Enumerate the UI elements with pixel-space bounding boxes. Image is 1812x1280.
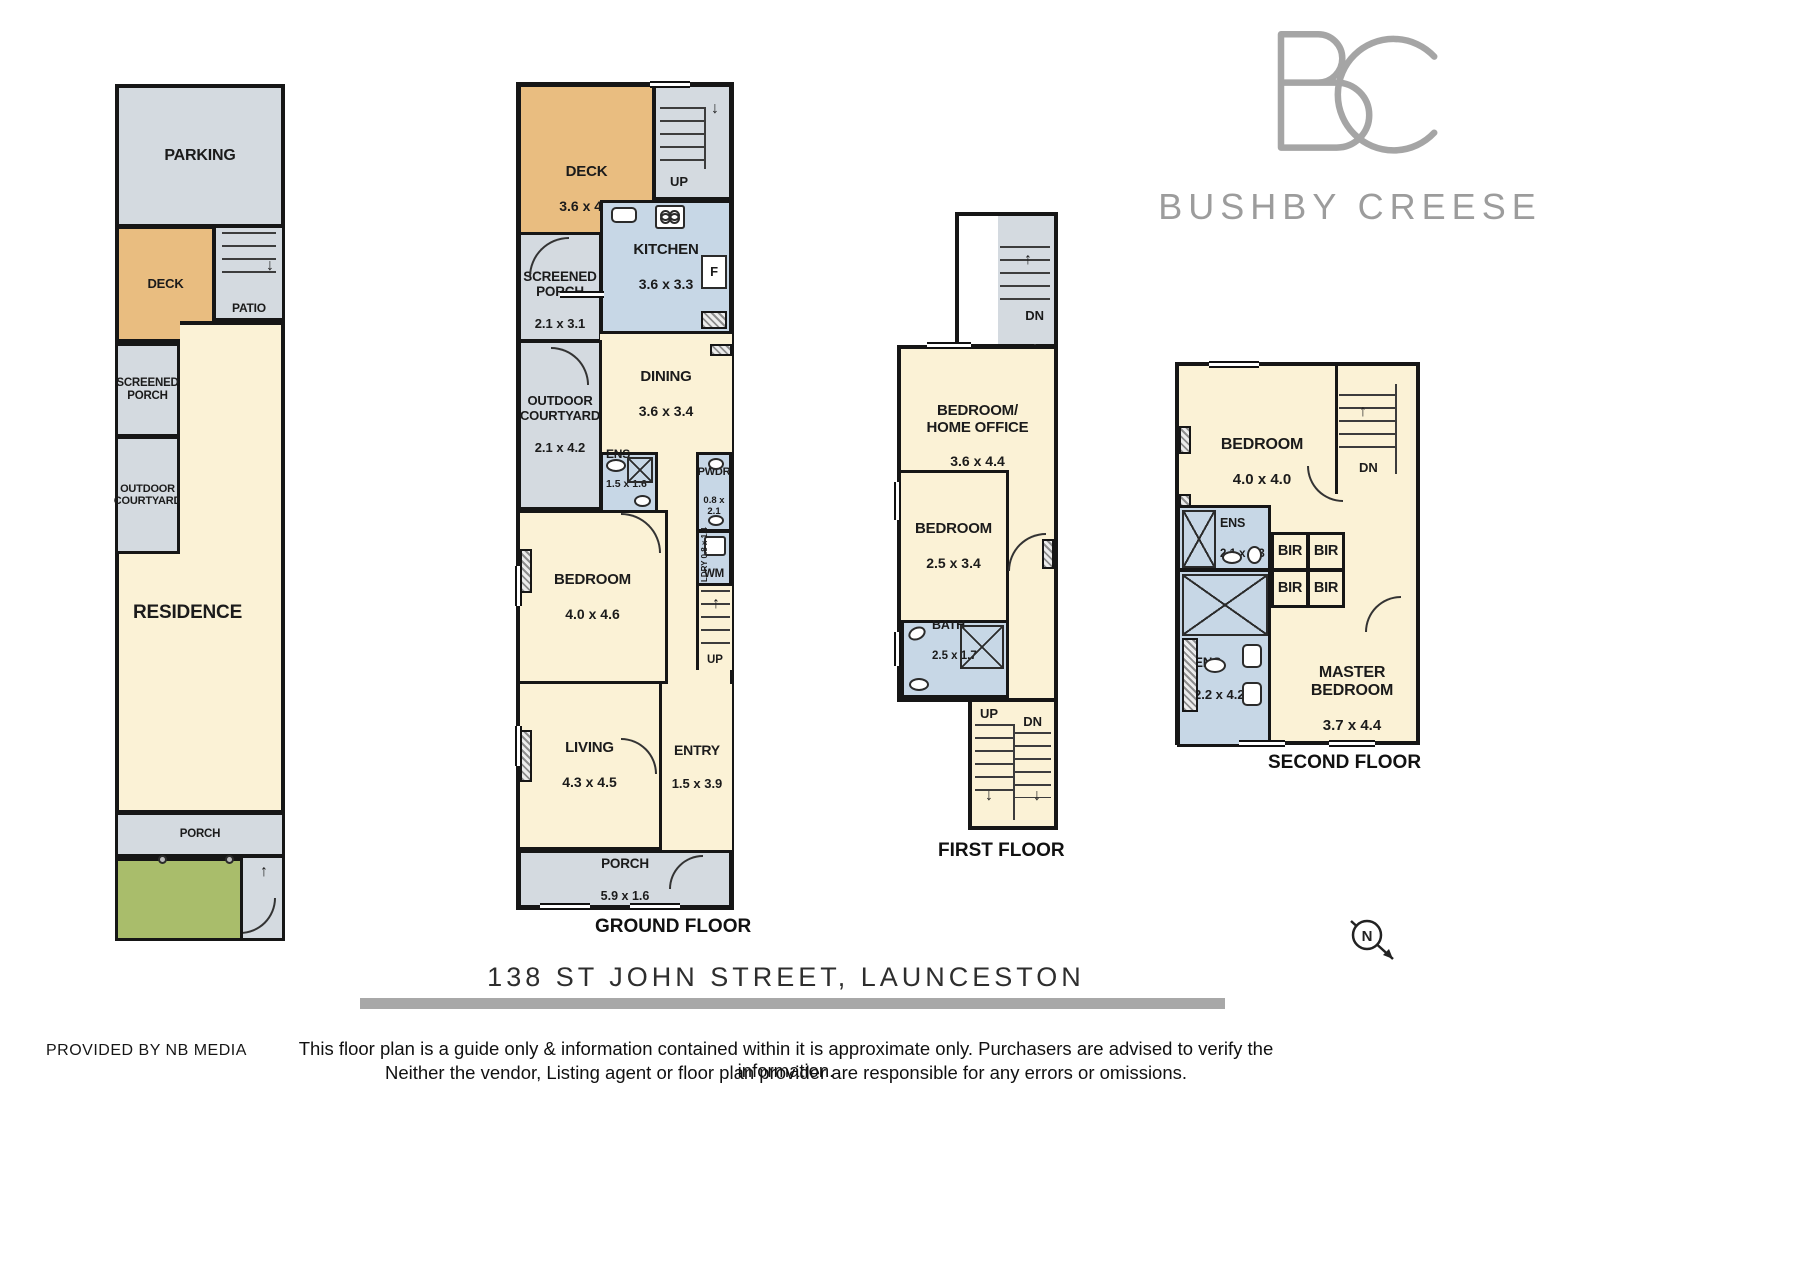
room-name: OUTDOOR COURTYARD	[114, 483, 181, 508]
bir-label: BIR	[1278, 543, 1302, 559]
room-name: RESIDENCE	[133, 602, 273, 623]
ground-courtyard: OUTDOOR COURTYARD 2.1 x 4.2	[518, 340, 602, 510]
toilet-icon	[1247, 546, 1262, 564]
bc-monogram-icon	[1255, 25, 1450, 155]
room-label: DINING 3.6 x 3.4	[639, 351, 694, 437]
ground-porch: PORCH 5.9 x 1.6	[518, 850, 732, 908]
room-name: BEDROOM	[915, 521, 992, 538]
window	[894, 632, 901, 666]
arrow-down-icon: ↓	[266, 258, 274, 274]
stairs-icon	[975, 724, 1013, 798]
arrow-up-icon: ↑	[712, 596, 720, 612]
door-arc-icon	[621, 738, 657, 774]
room-name: ENS	[1220, 516, 1265, 530]
room-dims: 3.6 x 4.4	[927, 454, 1029, 470]
room-name: DECK	[559, 164, 614, 181]
post-icon	[225, 855, 234, 864]
wall-hatch	[710, 344, 732, 356]
ground-kitchen: KITCHEN 3.6 x 3.3 F	[600, 200, 732, 334]
room-name: PORCH	[180, 828, 221, 841]
shower-icon	[960, 625, 1004, 669]
room-label: BEDROOM 4.0 x 4.6	[554, 554, 631, 640]
room-dims: 2.1 x 4.2	[520, 441, 600, 456]
room-dims: 4.0 x 4.6	[554, 607, 631, 623]
burner-icon	[669, 213, 680, 224]
toilet-icon	[1204, 658, 1226, 673]
window	[515, 566, 522, 606]
bir-label: BIR	[1278, 580, 1302, 596]
stair-rail	[1013, 724, 1015, 820]
door-arc-icon	[621, 513, 661, 553]
room-name: DINING	[639, 369, 694, 386]
shower-icon	[627, 457, 653, 483]
room-dims: 4.3 x 4.5	[562, 775, 617, 791]
wall-hatch	[1182, 638, 1198, 712]
north-arrow: N	[1345, 915, 1401, 967]
bir-label: BIR	[1314, 543, 1338, 559]
site-residence-upper	[180, 321, 285, 814]
room-label: ENS 2.1 x 1.3	[1220, 498, 1265, 579]
ground-stairs-mid: ↑ UP	[696, 586, 732, 670]
bir-robe: BIR	[1307, 532, 1345, 571]
stairs-up-label: UP	[670, 174, 688, 189]
window	[1329, 740, 1375, 747]
stairs-dn-label: DN	[1359, 460, 1378, 475]
room-dims: 3.7 x 4.4	[1287, 718, 1417, 735]
first-bath: BATH 2.5 x 1.7	[901, 620, 1009, 698]
stair-rail	[1395, 384, 1397, 474]
north-label: N	[1362, 928, 1373, 945]
site-parking: PARKING	[115, 84, 285, 228]
ground-living: LIVING 4.3 x 4.5	[520, 684, 662, 850]
brand-name: BUSHBY CREESE	[1140, 186, 1560, 228]
room-name: PORCH	[601, 856, 650, 871]
room-name: BEDROOM/ HOME OFFICE	[927, 403, 1029, 437]
site-plan: PARKING DECK ↓ PATIO SCREENED PORCH OUTD…	[115, 84, 285, 941]
sink-icon	[708, 515, 724, 526]
ground-laundry: WM LDRY 0.8 x 1.4	[696, 530, 732, 586]
ground-floor-plan: DECK 3.6 x 4.0 ↓ UP KITCHEN 3.6 x 3.3	[516, 82, 734, 910]
bir-robe: BIR	[1271, 569, 1309, 608]
second-floor-caption: SECOND FLOOR	[1268, 752, 1421, 774]
ground-ens: ENS 1.5 x 1.6	[600, 452, 658, 514]
sink-icon	[606, 459, 626, 472]
post-icon	[158, 855, 167, 864]
room-dims: 5.9 x 1.6	[601, 889, 650, 903]
bir-robe: BIR	[1307, 569, 1345, 608]
sink-icon	[1222, 551, 1242, 564]
shower-icon	[1182, 510, 1216, 568]
disclaimer-line-2: Neither the vendor, Listing agent or flo…	[256, 1062, 1316, 1084]
sink-icon	[909, 678, 929, 691]
room-label: LIVING 4.3 x 4.5	[562, 722, 617, 808]
divider-rule	[360, 998, 1225, 1009]
door-arc-icon	[240, 898, 276, 934]
site-garden	[115, 858, 243, 941]
site-courtyard: OUTDOOR COURTYARD	[115, 436, 180, 554]
site-patio: ↓ PATIO	[213, 225, 285, 321]
room-label: BEDROOM 4.0 x 4.0	[1197, 418, 1327, 506]
second-ens-large: ENS 2.2 x 4.2	[1177, 569, 1271, 747]
room-name: LIVING	[562, 740, 617, 757]
stairs-dn-label: DN	[1025, 308, 1044, 323]
toilet-icon	[634, 495, 651, 507]
room-name: OUTDOOR COURTYARD	[520, 394, 600, 423]
first-floor-plan: ↑ DN BEDROOM/ HOME OFFICE 3.6 x 4.4 BEDR…	[897, 212, 1060, 832]
room-label: ENTRY 1.5 x 3.9	[672, 725, 723, 809]
door-arc-icon	[551, 347, 589, 385]
arrow-down-icon: ↓	[985, 788, 993, 804]
room-name: KITCHEN	[633, 242, 698, 259]
window	[630, 903, 680, 910]
room-label: KITCHEN 3.6 x 3.3	[633, 224, 698, 310]
arrow-up-icon: ↑	[1359, 404, 1367, 420]
room-dims: 2.1 x 3.1	[523, 317, 596, 332]
window	[1239, 740, 1285, 747]
ground-stairs-top: ↓ UP	[653, 84, 732, 200]
floor-plan-page: PARKING DECK ↓ PATIO SCREENED PORCH OUTD…	[0, 0, 1812, 1280]
vanity-sink-icon	[1242, 644, 1262, 668]
room-dims: 2.2 x 4.2	[1194, 688, 1245, 703]
first-bedroom: BEDROOM 2.5 x 3.4	[901, 470, 1009, 620]
stairs-icon	[1013, 732, 1051, 798]
provided-by: PROVIDED BY NB MEDIA	[46, 1042, 247, 1060]
window	[540, 903, 590, 910]
room-name: MASTER BEDROOM	[1287, 664, 1417, 700]
room-name: BEDROOM	[1197, 436, 1327, 454]
stairs-icon	[1339, 394, 1395, 456]
first-floor-caption: FIRST FLOOR	[938, 840, 1065, 862]
room-dims: 3.6 x 3.3	[633, 277, 698, 293]
window	[560, 291, 604, 298]
room-label: MASTER BEDROOM 3.7 x 4.4	[1287, 646, 1417, 752]
first-stair-tower: ↑ DN	[955, 212, 1058, 348]
first-stairs-lower: UP DN ↓ ↓	[968, 698, 1058, 830]
stair-rail	[704, 107, 706, 169]
window	[1209, 361, 1259, 368]
room-name: ENTRY	[672, 743, 723, 759]
window	[515, 726, 522, 766]
stairs-up-label: UP	[980, 706, 998, 721]
ground-floor-caption: GROUND FLOOR	[595, 916, 751, 938]
ground-bedroom: BEDROOM 4.0 x 4.6	[520, 510, 668, 684]
arrow-down-icon: ↓	[1033, 788, 1041, 804]
room-name: PATIO	[232, 302, 266, 315]
toilet-icon	[906, 624, 928, 643]
vanity-sink-icon	[1242, 682, 1262, 706]
stairs-up-label: UP	[707, 654, 723, 666]
door-arc-icon	[1365, 596, 1401, 632]
window	[927, 342, 971, 349]
site-porch: PORCH	[115, 812, 285, 857]
pantry-hatch	[701, 311, 727, 329]
window	[894, 482, 901, 520]
room-name: BEDROOM	[554, 572, 631, 589]
window	[650, 81, 690, 88]
door-arc-icon	[669, 855, 703, 889]
room-dims: 3.6 x 3.4	[639, 404, 694, 420]
room-dims: 2.5 x 3.4	[915, 556, 992, 572]
ground-screened-porch: SCREENED PORCH 2.1 x 3.1	[518, 232, 602, 342]
second-ens-small: ENS 2.1 x 1.3	[1177, 505, 1271, 571]
bir-robe: BIR	[1271, 532, 1309, 571]
laundry-label: LDRY 0.8 x 1.4	[700, 527, 709, 582]
north-arrow-icon: N	[1345, 915, 1401, 967]
property-address: 138 ST JOHN STREET, LAUNCESTON	[406, 962, 1166, 993]
stairs-dn-label: DN	[1023, 714, 1042, 729]
room-name: DECK	[147, 277, 183, 292]
arrow-up-icon: ↑	[260, 864, 268, 880]
room-label: BEDROOM 2.5 x 3.4	[915, 503, 992, 589]
wall-hatch	[1179, 426, 1191, 454]
ground-entry: ENTRY 1.5 x 3.9	[662, 684, 732, 850]
room-label: OUTDOOR COURTYARD 2.1 x 4.2	[520, 376, 600, 473]
ground-pwdr: PWDR 0.8 x 2.1	[696, 452, 732, 532]
room-dims: 1.5 x 3.9	[672, 777, 723, 792]
arrow-up-icon: ↑	[1024, 252, 1032, 268]
fridge-label: F	[710, 265, 718, 280]
sink-icon	[611, 207, 637, 223]
arrow-down-icon: ↓	[711, 101, 719, 117]
second-floor-plan: BEDROOM 4.0 x 4.0 ↑ DN ENS 2.1 x 1.3 BIR	[1175, 362, 1420, 745]
room-name: PARKING	[164, 147, 235, 165]
bir-label: BIR	[1314, 580, 1338, 596]
shower-icon	[1182, 574, 1268, 636]
site-screened-porch: SCREENED PORCH	[115, 343, 180, 437]
door-arc-icon	[529, 237, 569, 277]
site-residence-lower	[115, 554, 184, 814]
brand-logo	[1255, 25, 1450, 155]
stairs-icon	[660, 107, 704, 169]
fridge-icon: F	[701, 255, 727, 289]
stove-icon	[655, 205, 685, 229]
room-name: SCREENED PORCH	[116, 377, 178, 403]
room-label: ENS 2.2 x 4.2	[1194, 637, 1245, 720]
toilet-icon	[708, 458, 724, 470]
